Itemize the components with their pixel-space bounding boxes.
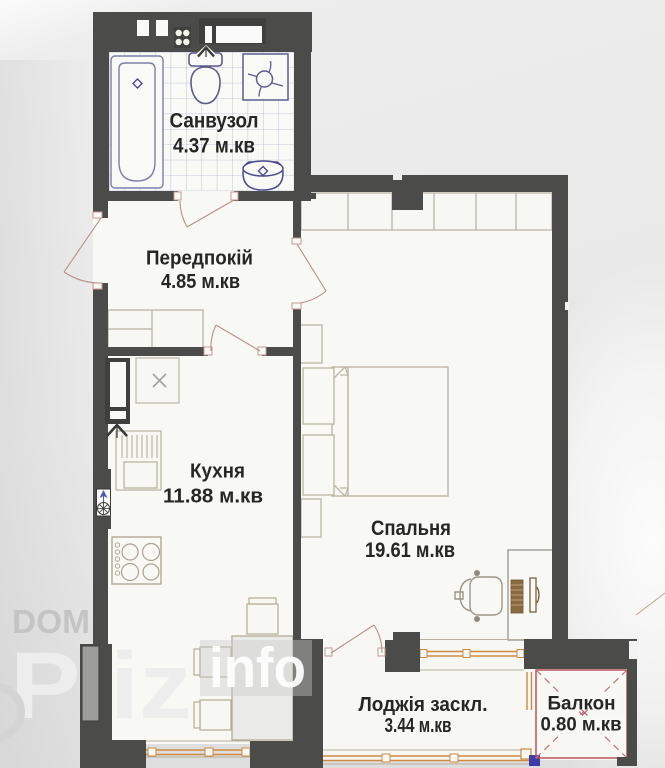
svg-text:Балкон: Балкон — [548, 694, 616, 715]
svg-text:Лоджія заскл.: Лоджія заскл. — [359, 694, 488, 716]
svg-text:11.88 м.кв: 11.88 м.кв — [163, 485, 263, 508]
svg-text:0.80 м.кв: 0.80 м.кв — [541, 714, 622, 736]
svg-text:4.85 м.кв: 4.85 м.кв — [161, 270, 240, 293]
svg-text:Передпокій: Передпокій — [146, 247, 253, 270]
svg-text:3.44 м.кв: 3.44 м.кв — [385, 715, 452, 737]
svg-text:Спальня: Спальня — [371, 516, 451, 540]
svg-text:4.37 м.кв: 4.37 м.кв — [173, 134, 255, 158]
svg-text:19.61 м.кв: 19.61 м.кв — [365, 539, 455, 562]
svg-text:info: info — [209, 636, 306, 700]
svg-text:Санвузол: Санвузол — [170, 109, 259, 133]
svg-text:Кухня: Кухня — [190, 460, 245, 483]
